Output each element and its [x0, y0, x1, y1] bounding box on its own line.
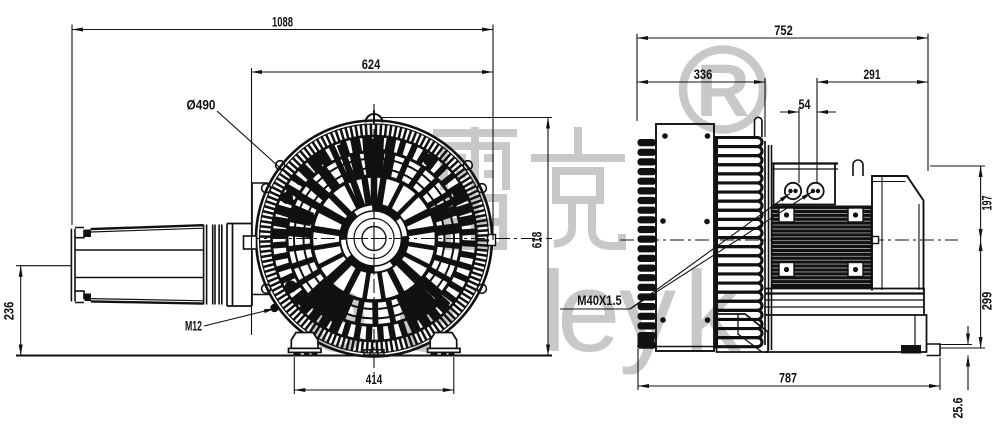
- svg-text:787: 787: [779, 370, 797, 386]
- svg-text:197: 197: [979, 195, 995, 210]
- svg-text:Ø490: Ø490: [187, 97, 216, 113]
- svg-text:291: 291: [864, 66, 881, 82]
- svg-text:624: 624: [362, 56, 381, 72]
- svg-text:54: 54: [799, 96, 811, 112]
- svg-text:414: 414: [366, 371, 383, 387]
- svg-text:236: 236: [1, 302, 17, 321]
- svg-text:336: 336: [694, 66, 713, 82]
- svg-text:25.6: 25.6: [950, 397, 966, 418]
- svg-text:299: 299: [979, 292, 995, 311]
- svg-text:M12: M12: [185, 318, 202, 334]
- svg-text:R: R: [696, 49, 749, 132]
- svg-text:752: 752: [774, 22, 793, 38]
- svg-text:618: 618: [529, 232, 545, 249]
- svg-text:M40X1.5: M40X1.5: [577, 292, 622, 308]
- svg-text:1088: 1088: [272, 14, 293, 30]
